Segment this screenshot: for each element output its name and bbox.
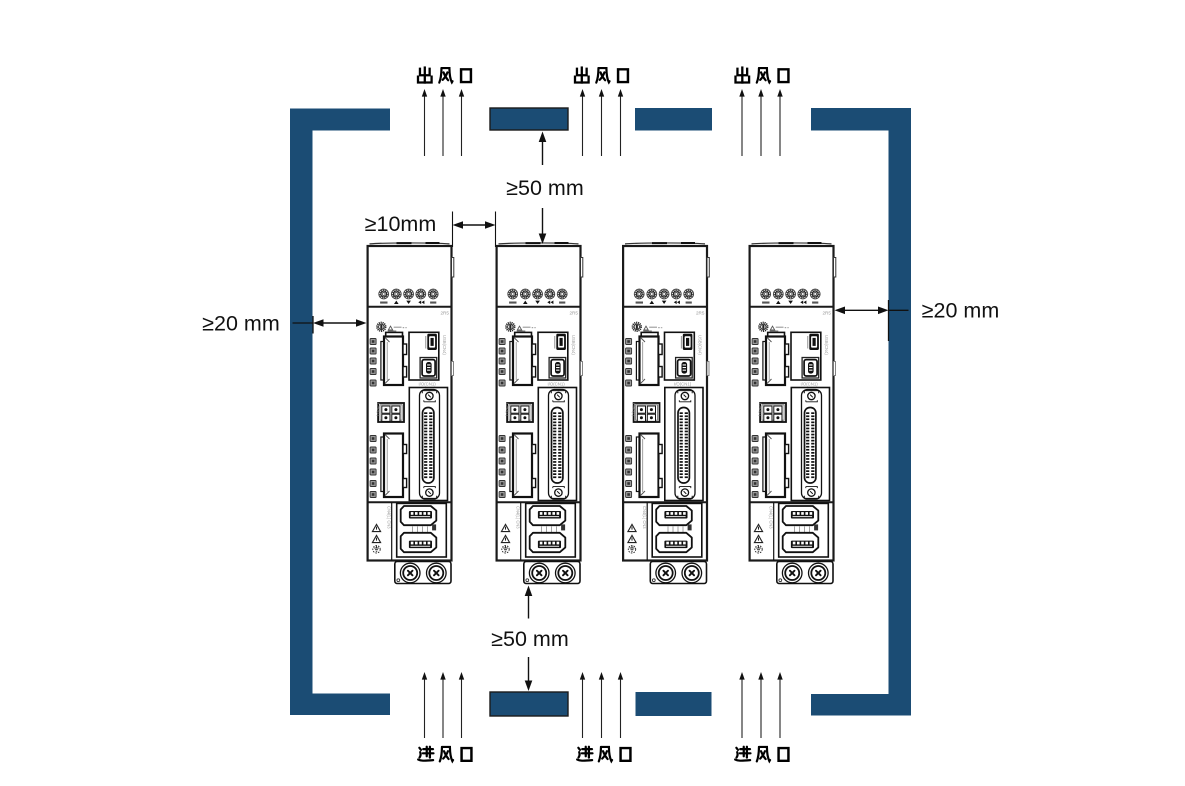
svg-text:≥20 mm: ≥20 mm — [202, 312, 280, 336]
svg-text:≥20 mm: ≥20 mm — [922, 299, 1000, 323]
svg-text:≥50 mm: ≥50 mm — [491, 627, 569, 651]
svg-text:≥50 mm: ≥50 mm — [506, 176, 584, 200]
svg-text:≥10mm: ≥10mm — [365, 212, 437, 236]
